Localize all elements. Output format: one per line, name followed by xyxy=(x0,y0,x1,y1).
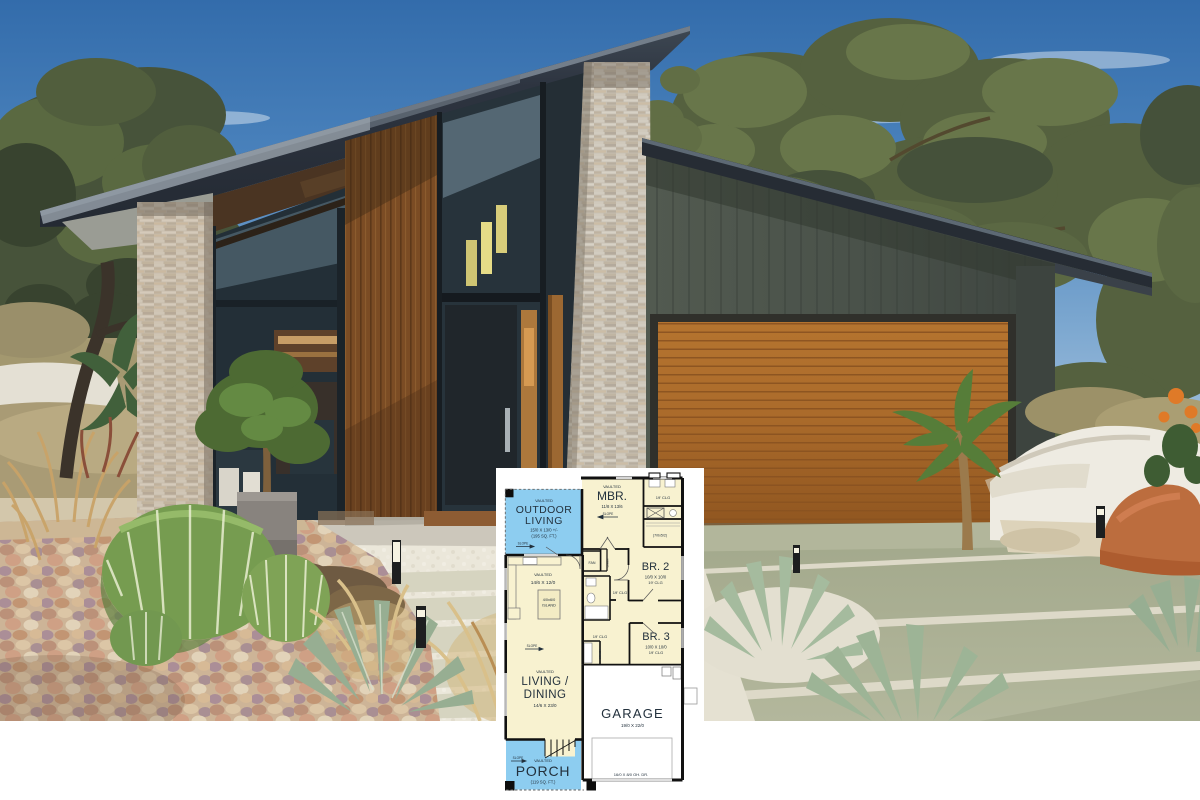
svg-text:19' CLG: 19' CLG xyxy=(593,634,608,639)
svg-text:14/6 X 12/0: 14/6 X 12/0 xyxy=(531,580,556,586)
svg-text:10/0 X 10/0: 10/0 X 10/0 xyxy=(645,575,667,580)
svg-text:SLOPE: SLOPE xyxy=(518,542,529,546)
svg-text:SLOPE: SLOPE xyxy=(603,512,614,516)
svg-text:11/8 X 13/6: 11/8 X 13/6 xyxy=(601,504,623,509)
svg-text:LIVING /: LIVING / xyxy=(521,676,569,688)
svg-text:(119 SQ. FT.): (119 SQ. FT.) xyxy=(531,780,556,785)
svg-text:DINING: DINING xyxy=(524,689,567,701)
svg-text:14/6 X 23/0: 14/6 X 23/0 xyxy=(533,703,557,708)
svg-text:ISLAND: ISLAND xyxy=(542,604,556,608)
svg-text:BR. 3: BR. 3 xyxy=(642,631,670,643)
svg-text:PORCH: PORCH xyxy=(516,763,571,779)
svg-text:15/0 X 13/0 +/-: 15/0 X 13/0 +/- xyxy=(530,528,558,533)
svg-text:BENCH: BENCH xyxy=(598,649,602,659)
svg-text:GARAGE: GARAGE xyxy=(601,706,664,721)
svg-text:VAULTED: VAULTED xyxy=(535,498,553,503)
svg-text:BR. 2: BR. 2 xyxy=(642,561,670,573)
svg-text:16/0 X 8/0 OH. DR.: 16/0 X 8/0 OH. DR. xyxy=(614,772,648,777)
svg-text:SLOPE: SLOPE xyxy=(527,644,538,648)
svg-text:19/0 X 22/0: 19/0 X 22/0 xyxy=(621,723,645,728)
svg-text:VAULTED: VAULTED xyxy=(536,669,554,674)
svg-text:LIVING: LIVING xyxy=(525,515,563,527)
svg-text:19' CLG: 19' CLG xyxy=(613,590,628,595)
svg-text:19' CLG: 19' CLG xyxy=(649,650,664,655)
svg-text:19' CLG: 19' CLG xyxy=(648,580,663,585)
svg-text:MBR.: MBR. xyxy=(597,489,627,503)
svg-text:(7/0x5/2): (7/0x5/2) xyxy=(653,534,667,538)
svg-text:10/0 X 10/0: 10/0 X 10/0 xyxy=(645,645,667,650)
svg-text:VAULTED: VAULTED xyxy=(534,572,552,577)
svg-text:19' CLG: 19' CLG xyxy=(656,495,671,500)
svg-text:4/0x6/0: 4/0x6/0 xyxy=(543,598,555,602)
svg-text:FAN: FAN xyxy=(589,561,596,565)
svg-text:(195 SQ. FT.): (195 SQ. FT.) xyxy=(531,534,557,539)
